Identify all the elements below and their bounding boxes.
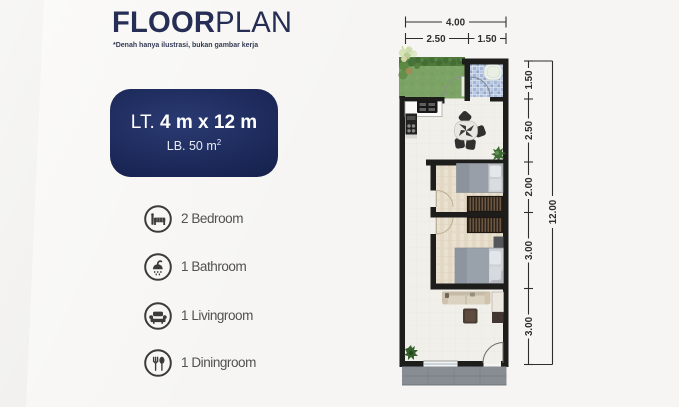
svg-text:1.50: 1.50	[477, 34, 497, 45]
svg-text:2.00: 2.00	[524, 177, 535, 197]
svg-text:12.00: 12.00	[548, 199, 559, 224]
svg-text:3.00: 3.00	[524, 316, 535, 336]
svg-text:3.00: 3.00	[524, 240, 535, 260]
svg-text:1.50: 1.50	[524, 70, 535, 90]
svg-text:2.50: 2.50	[426, 34, 446, 45]
svg-text:4.00: 4.00	[446, 18, 466, 29]
svg-text:2.50: 2.50	[524, 120, 535, 140]
